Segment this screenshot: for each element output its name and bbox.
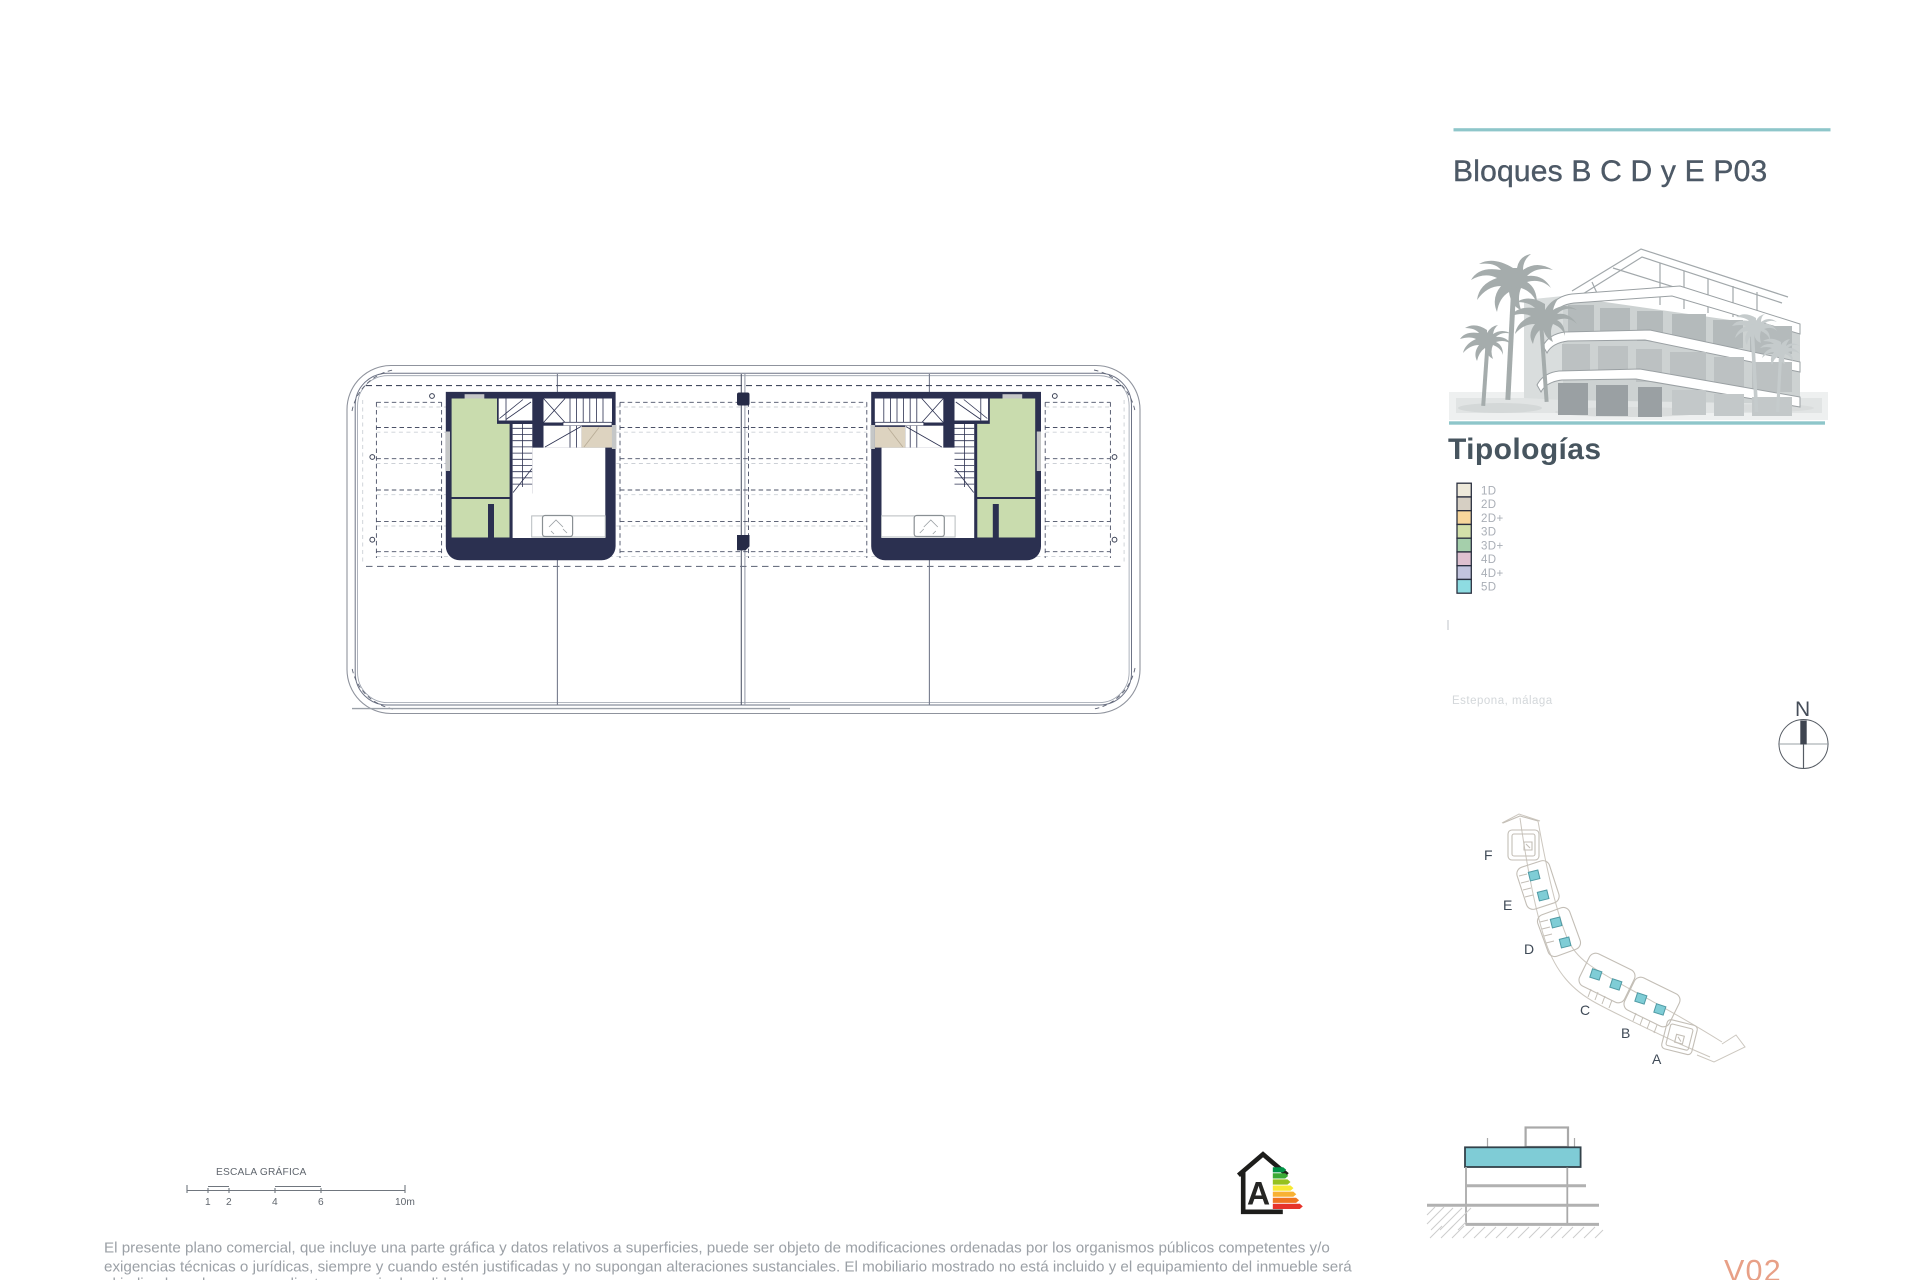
svg-text:5D: 5D [1481,582,1497,594]
svg-text:B: B [1621,1025,1630,1041]
svg-text:Estepona, málaga: Estepona, málaga [1452,695,1553,707]
svg-text:2D+: 2D+ [1481,513,1504,525]
svg-text:E: E [1503,897,1512,913]
svg-text:1: 1 [205,1197,211,1208]
svg-text:C: C [1580,1002,1590,1018]
svg-text:2D: 2D [1481,499,1497,511]
svg-text:4: 4 [272,1197,278,1208]
svg-text:ESCALA GRÁFICA: ESCALA GRÁFICA [216,1165,307,1178]
svg-text:3D: 3D [1481,527,1497,539]
svg-text:F: F [1484,847,1493,863]
svg-text:2: 2 [226,1197,232,1208]
svg-text:A: A [1247,1176,1270,1212]
svg-text:El presente plano comercial, q: El presente plano comercial, que incluye… [104,1240,1330,1257]
svg-text:exigencias técnicas o jurídica: exigencias técnicas o jurídicas, siempre… [104,1259,1352,1276]
svg-text:A: A [1652,1051,1662,1067]
svg-text:10m: 10m [395,1197,415,1208]
svg-text:el indicado en la correspondie: el indicado en la correspondiente memori… [104,1276,484,1280]
svg-text:4D: 4D [1481,554,1497,566]
svg-text:V02: V02 [1724,1254,1782,1280]
svg-text:1D: 1D [1481,486,1497,498]
svg-text:Tipologías: Tipologías [1448,433,1601,466]
svg-text:6: 6 [318,1197,324,1208]
svg-text:4D+: 4D+ [1481,568,1504,580]
svg-text:N: N [1795,698,1810,721]
svg-text:3D+: 3D+ [1481,541,1504,553]
svg-text:D: D [1524,941,1534,957]
svg-text:Bloques B C D y E P03: Bloques B C D y E P03 [1453,155,1767,188]
